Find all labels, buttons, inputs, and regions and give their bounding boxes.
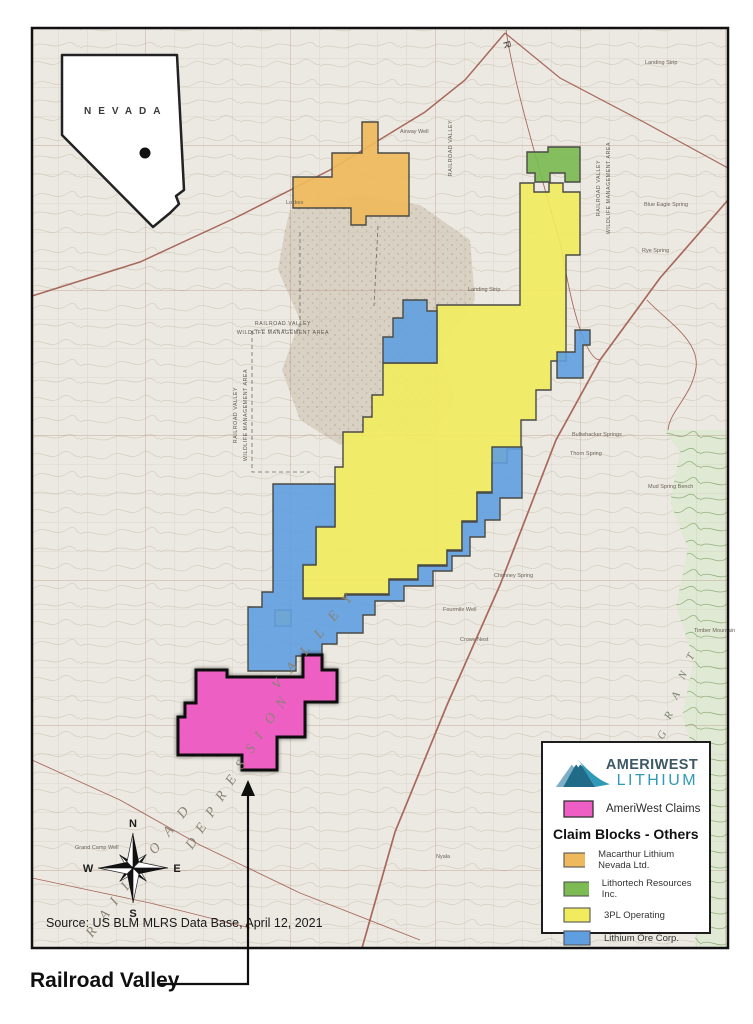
svg-text:Mud Spring Bench: Mud Spring Bench bbox=[648, 484, 693, 490]
svg-text:Bullwhacker Springs: Bullwhacker Springs bbox=[572, 432, 622, 438]
legend-item-lithortech: Lithortech Resources Inc. bbox=[563, 878, 701, 900]
ameriwest-swatch bbox=[563, 800, 594, 818]
svg-text:WILDLIFE MANAGEMENT AREA: WILDLIFE MANAGEMENT AREA bbox=[243, 369, 249, 461]
legend-label: AmeriWest Claims bbox=[606, 803, 700, 815]
legend-item-3pl: 3PL Operating bbox=[563, 907, 701, 923]
legend-item-lithium-ore: Lithium Ore Corp. bbox=[563, 930, 701, 946]
ameriwest-logo: AMERIWEST LITHIUM bbox=[551, 753, 701, 793]
svg-text:Lockes: Lockes bbox=[286, 200, 304, 206]
svg-text:Rye Spring: Rye Spring bbox=[642, 248, 669, 254]
compass-n: N bbox=[129, 818, 137, 830]
location-dot bbox=[140, 148, 151, 159]
svg-text:Crows Nest: Crows Nest bbox=[460, 637, 489, 643]
legend-item-macarthur: Macarthur Lithium Nevada Ltd. bbox=[563, 849, 701, 871]
source-note: Source: US BLM MLRS Data Base, April 12,… bbox=[46, 916, 323, 930]
callout-railroad-valley: Railroad Valley bbox=[30, 969, 179, 993]
macarthur-swatch bbox=[563, 852, 585, 868]
logo-ameriwest: AMERIWEST bbox=[606, 758, 698, 773]
mountain-logo-icon bbox=[554, 753, 610, 793]
svg-text:WILDLIFE MANAGEMENT AREA: WILDLIFE MANAGEMENT AREA bbox=[237, 330, 329, 336]
svg-text:Blue Eagle Spring: Blue Eagle Spring bbox=[644, 202, 688, 208]
svg-text:Thorn Spring: Thorn Spring bbox=[570, 451, 602, 457]
logo-lithium: LITHIUM bbox=[606, 773, 698, 789]
lithortech-swatch bbox=[563, 881, 589, 897]
svg-text:Landing Strip: Landing Strip bbox=[645, 60, 677, 66]
map-figure: R A I L R O A D D E P R E S S I O N V A … bbox=[0, 0, 753, 1024]
svg-text:RAILROAD VALLEY: RAILROAD VALLEY bbox=[596, 160, 602, 216]
legend-label: 3PL Operating bbox=[604, 910, 665, 921]
svg-text:Nyala: Nyala bbox=[436, 854, 451, 860]
svg-text:Fourmile Well: Fourmile Well bbox=[443, 607, 477, 613]
svg-text:Landing Strip: Landing Strip bbox=[468, 287, 500, 293]
svg-text:WILDLIFE MANAGEMENT AREA: WILDLIFE MANAGEMENT AREA bbox=[606, 142, 612, 234]
lithium-ore-swatch bbox=[563, 930, 591, 946]
svg-text:RAILROAD VALLEY: RAILROAD VALLEY bbox=[255, 321, 311, 327]
svg-text:Grand Camp Well: Grand Camp Well bbox=[75, 845, 119, 851]
legend-item-ameriwest: AmeriWest Claims bbox=[563, 800, 701, 818]
svg-text:Airway Well: Airway Well bbox=[400, 129, 429, 135]
svg-text:RAILROAD VALLEY: RAILROAD VALLEY bbox=[233, 387, 239, 443]
compass-w: W bbox=[83, 863, 94, 875]
svg-text:Chimney Spring: Chimney Spring bbox=[494, 573, 533, 579]
legend-label: Lithium Ore Corp. bbox=[604, 933, 679, 944]
svg-text:RAILROAD VALLEY: RAILROAD VALLEY bbox=[448, 120, 454, 176]
legend-label: Lithortech Resources Inc. bbox=[602, 878, 701, 900]
nevada-label: NEVADA bbox=[84, 106, 167, 117]
legend-box: AMERIWEST LITHIUM AmeriWest Claims Claim… bbox=[541, 741, 711, 934]
legend-label: Macarthur Lithium Nevada Ltd. bbox=[598, 849, 701, 871]
compass-e: E bbox=[173, 863, 180, 875]
legend-others-heading: Claim Blocks - Others bbox=[553, 826, 701, 842]
3pl-swatch bbox=[563, 907, 591, 923]
